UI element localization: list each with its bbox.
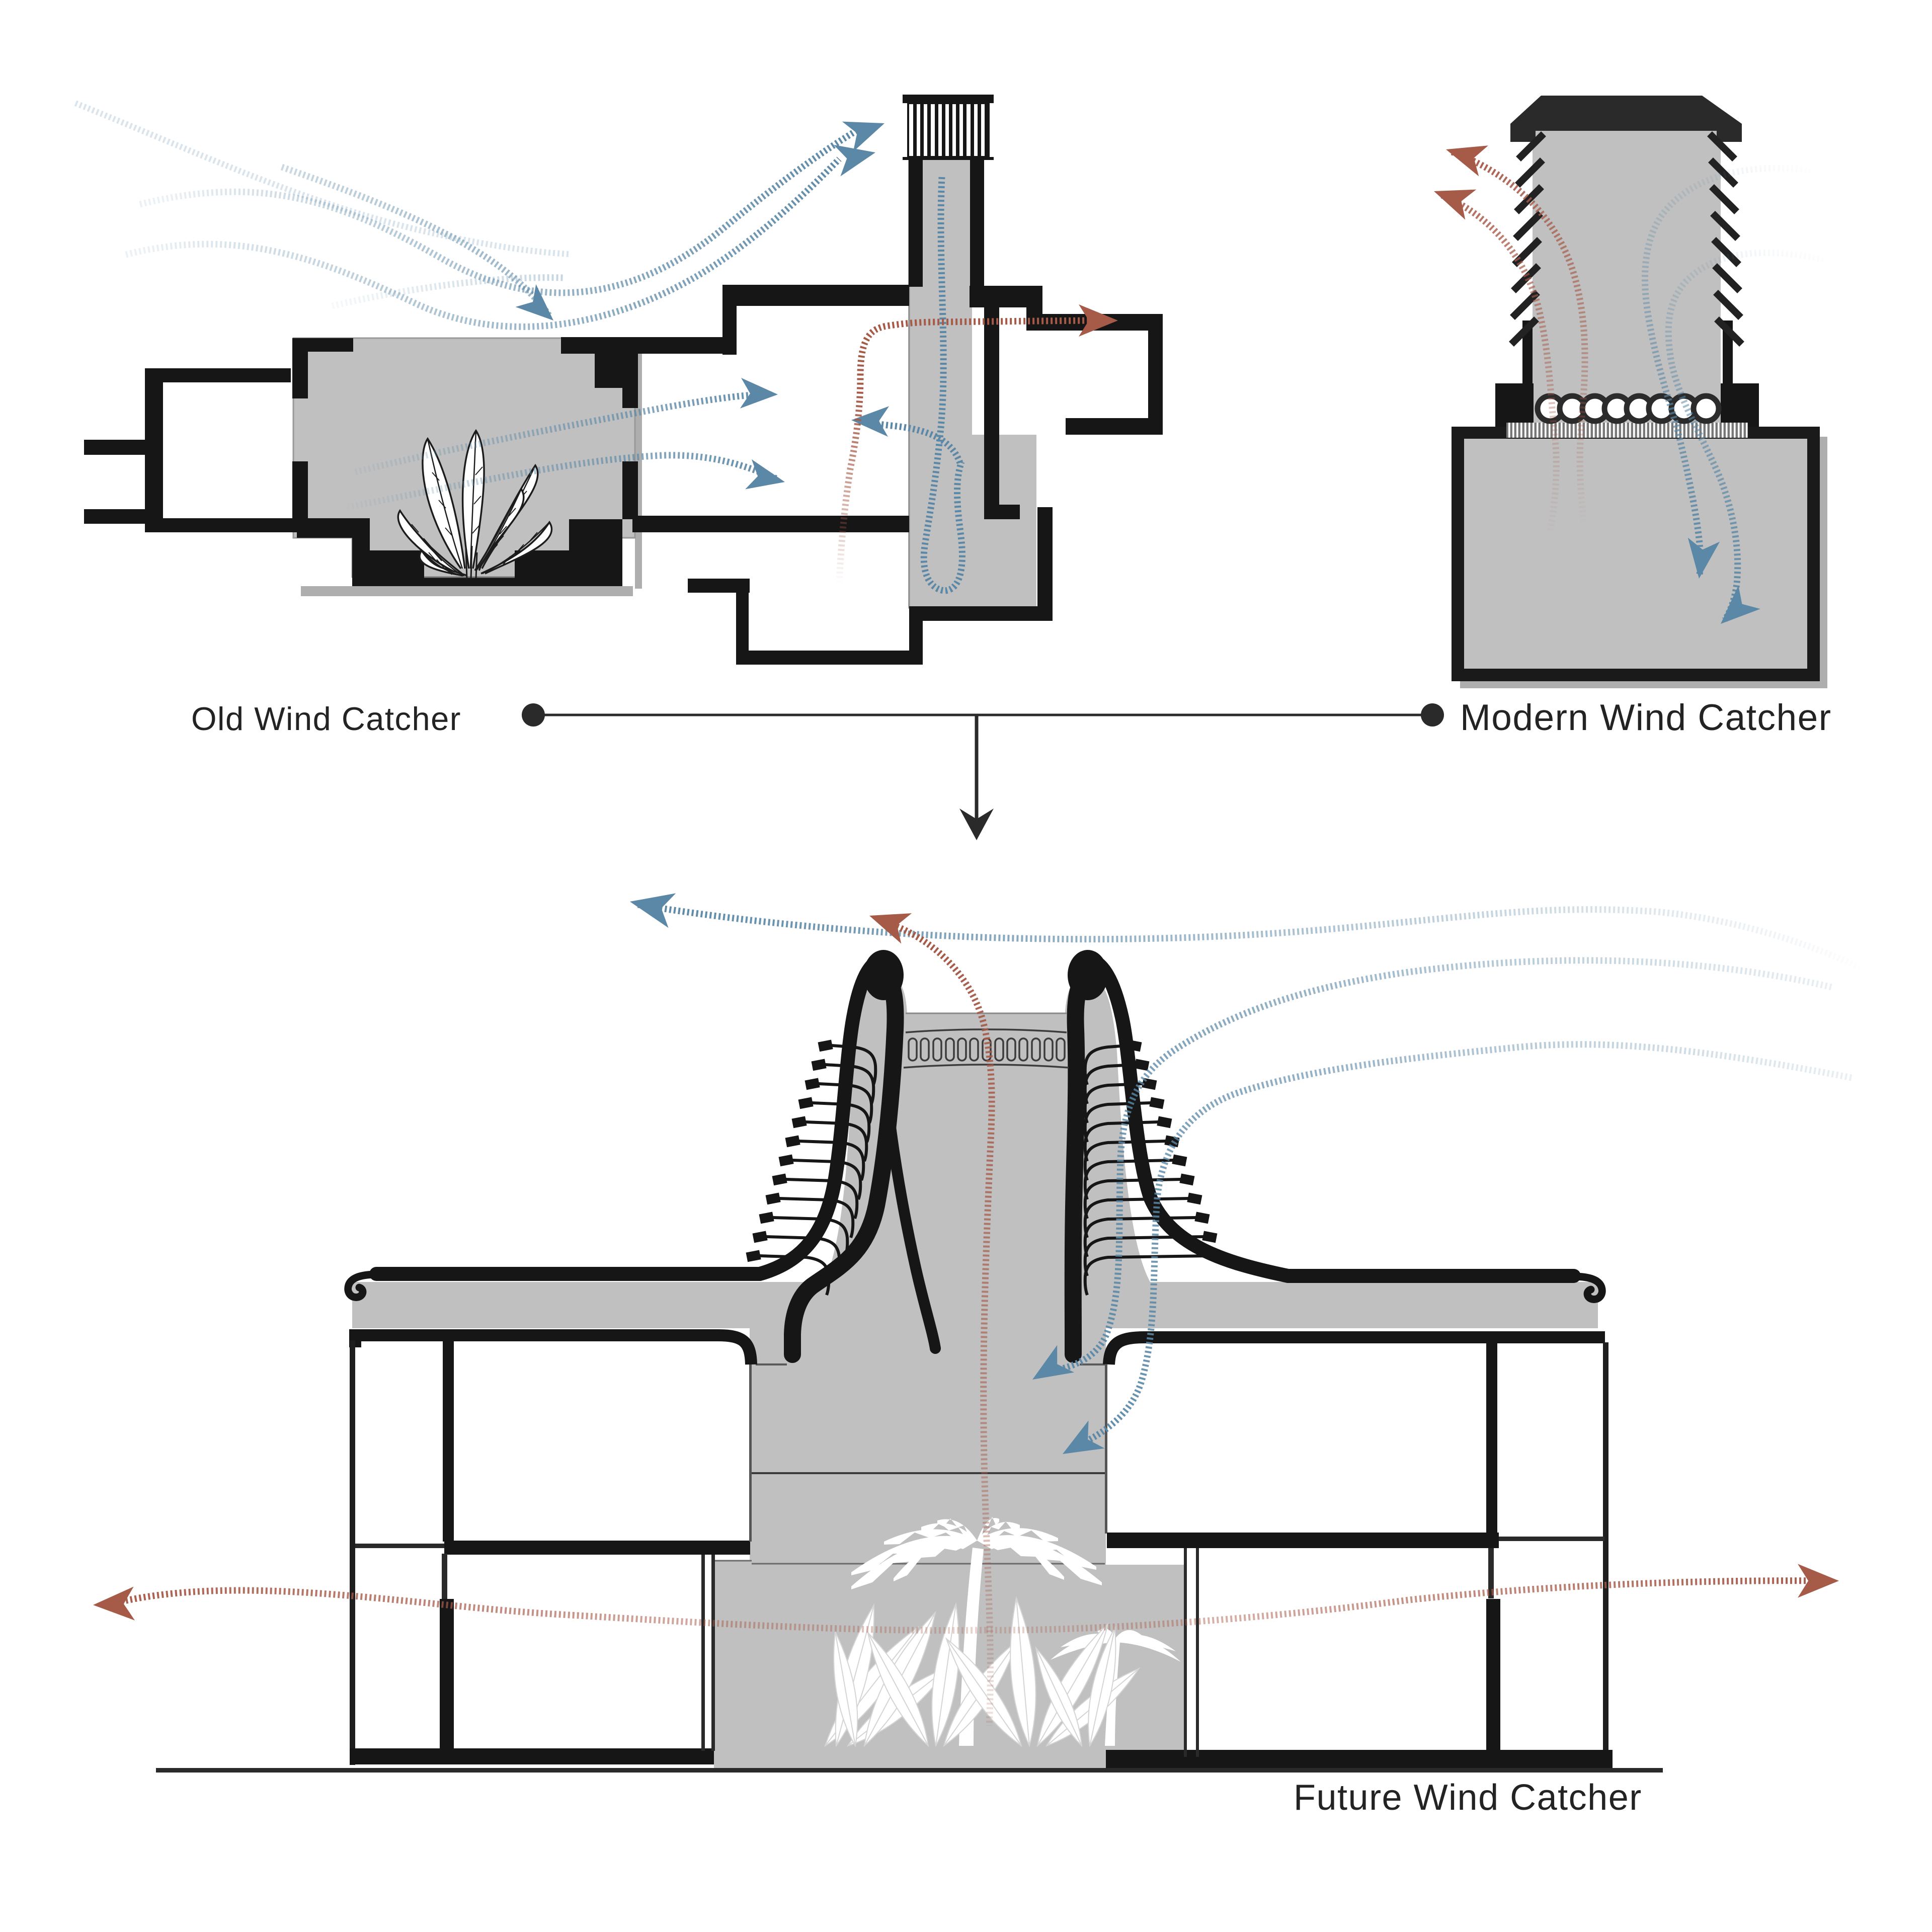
svg-text:Modern Wind Catcher: Modern Wind Catcher — [1460, 697, 1832, 738]
svg-text:Future Wind Catcher: Future Wind Catcher — [1294, 1778, 1642, 1818]
svg-text:Old Wind Catcher: Old Wind Catcher — [191, 700, 461, 737]
